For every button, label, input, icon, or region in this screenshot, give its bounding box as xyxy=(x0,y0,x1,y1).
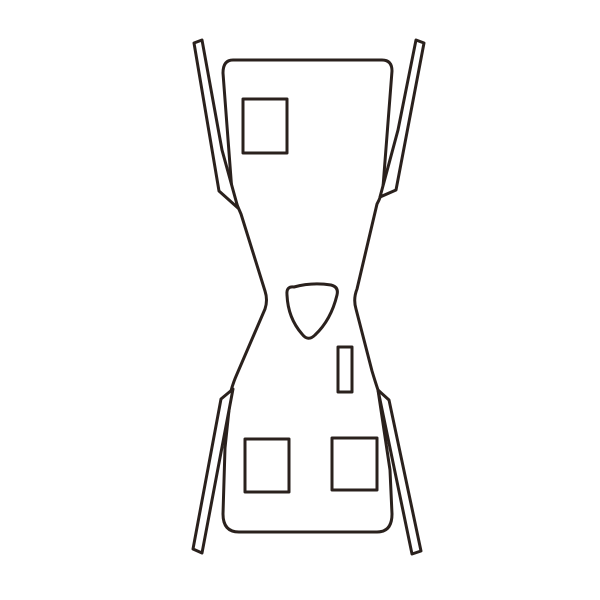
canvas xyxy=(0,0,600,600)
lower-pocket-left xyxy=(245,439,289,492)
apron-illustration xyxy=(0,0,600,600)
loop-slit xyxy=(338,347,352,392)
lower-pocket-right xyxy=(332,438,377,490)
chest-pocket xyxy=(243,99,287,153)
